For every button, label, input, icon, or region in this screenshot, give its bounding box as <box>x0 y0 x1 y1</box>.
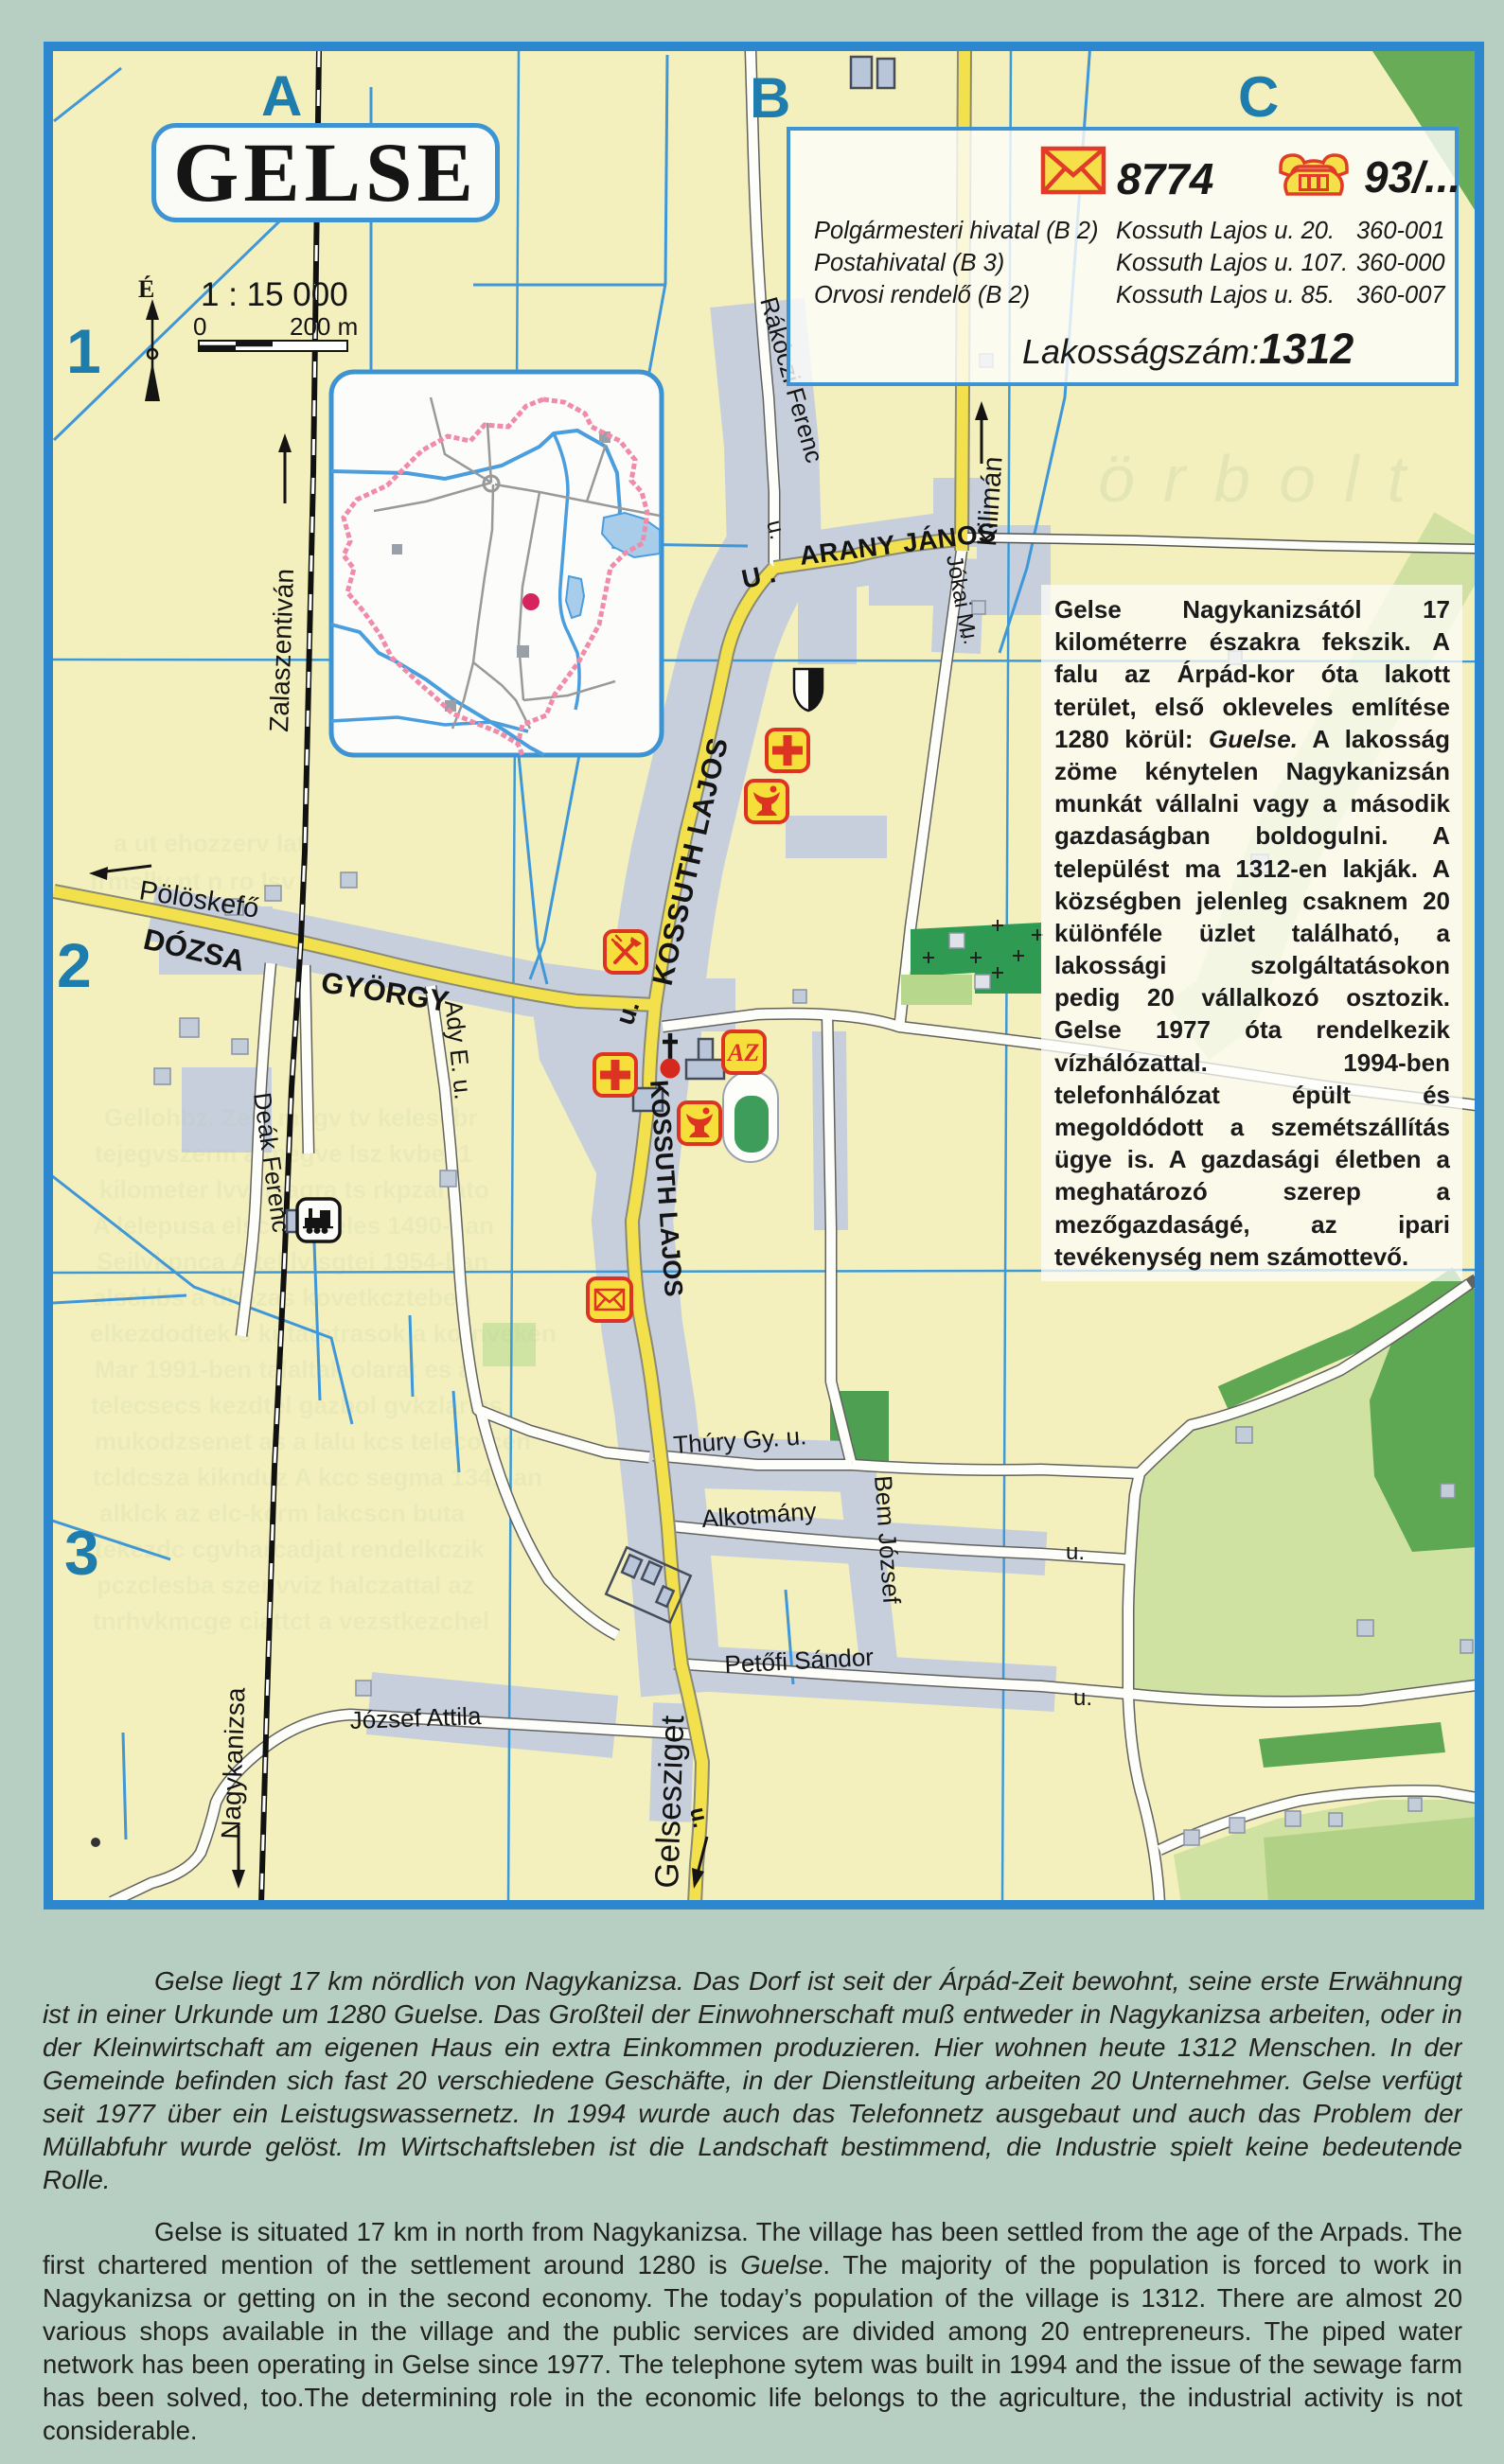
svg-text:200 m: 200 m <box>290 312 358 341</box>
svg-text:Zalaszentiván: Zalaszentiván <box>264 568 299 732</box>
svg-text:örbolt: örbolt <box>1098 442 1434 516</box>
svg-text:C: C <box>1238 65 1279 129</box>
svg-text:a ut ehozzerv lat: a ut ehozzerv lat <box>114 829 306 857</box>
svg-text:Gelsesziget: Gelsesziget <box>648 1715 691 1889</box>
svg-text:1: 1 <box>66 316 101 386</box>
svg-text:É: É <box>138 275 154 303</box>
svg-text:tnrhvkmcge ciattct a vezstkezc: tnrhvkmcge ciattct a vezstkezchel <box>93 1607 489 1635</box>
svg-text:AZ: AZ <box>726 1039 759 1066</box>
svg-text:Mar 1991-ben talaltak olarat e: Mar 1991-ben talaltak olarat es a <box>95 1355 472 1383</box>
svg-text:u.: u. <box>1066 1540 1085 1565</box>
svg-text:tcldcsza kiknduz A kcc segma 1: tcldcsza kiknduz A kcc segma 1341-an <box>93 1463 542 1491</box>
svg-text:tekezdc cgvharcadjat rendelkcz: tekezdc cgvharcadjat rendelkczik <box>95 1535 485 1563</box>
svg-text:A: A <box>261 64 302 128</box>
svg-text:pczclesba szenvviz halczattal: pczclesba szenvviz halczattal az <box>97 1571 474 1599</box>
svg-text:1 : 15 000: 1 : 15 000 <box>201 276 348 313</box>
svg-text:u.: u. <box>1073 1685 1092 1711</box>
svg-text:B: B <box>750 66 790 130</box>
svg-text:Kilimán: Kilimán <box>972 455 1009 547</box>
svg-text:0: 0 <box>193 312 206 341</box>
svg-text:Nagykanizsa: Nagykanizsa <box>216 1686 251 1839</box>
svg-text:2: 2 <box>57 930 92 1000</box>
svg-text:József Attila: József Attila <box>349 1701 482 1734</box>
svg-text:kilometer lvvolsagra ts rkpzah: kilometer lvvolsagra ts rkpzahato <box>99 1175 489 1204</box>
svg-text:3: 3 <box>64 1518 99 1588</box>
svg-text:mukodzsenet as a lalu kcs tele: mukodzsenet as a lalu kcs telecolcen <box>95 1427 531 1455</box>
svg-text:alklck az elc-kcrm lakcscn but: alklck az elc-kcrm lakcscn buta <box>99 1499 465 1527</box>
svg-text:telecsecs kezdtel gazbol gvkzl: telecsecs kezdtel gazbol gvkzlarlas <box>91 1391 503 1419</box>
svg-text:elkezdodtek s kutatotrasok a k: elkezdodtek s kutatotrasok a kornveken <box>90 1319 557 1347</box>
